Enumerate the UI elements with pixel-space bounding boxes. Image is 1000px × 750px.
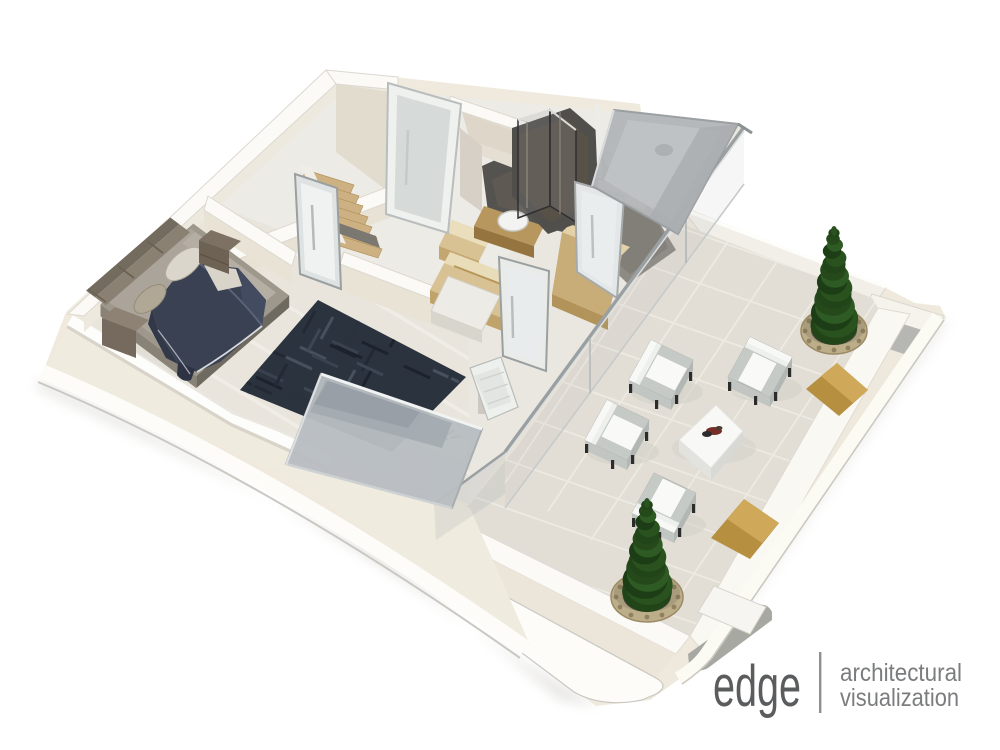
svg-text:architectural: architectural (840, 659, 962, 687)
svg-text:edge: edge (713, 654, 801, 719)
svg-text:visualization: visualization (840, 684, 959, 712)
